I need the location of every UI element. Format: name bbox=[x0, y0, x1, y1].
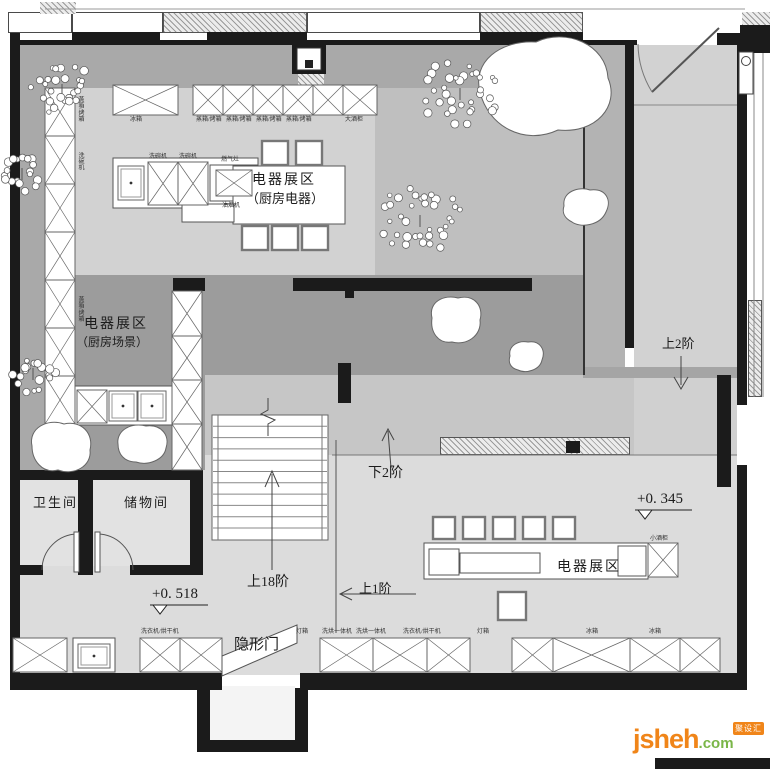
tree-foliage bbox=[473, 70, 479, 76]
tree-foliage bbox=[421, 194, 428, 201]
tree-foliage bbox=[30, 161, 37, 168]
bathroom-door-arc bbox=[42, 534, 78, 570]
wall-room-divider bbox=[78, 480, 93, 565]
tree-foliage bbox=[442, 85, 447, 90]
cabinet-label-left: 蒸箱/烤箱 bbox=[77, 296, 83, 322]
logo-tld: .com bbox=[699, 735, 734, 752]
tree-foliage bbox=[35, 376, 44, 385]
tree-foliage bbox=[47, 110, 52, 115]
tree-foliage bbox=[9, 371, 17, 379]
display-bar-leg bbox=[345, 291, 354, 298]
tree-foliage bbox=[430, 201, 438, 209]
wall-right-lower bbox=[737, 465, 747, 690]
porch-wall bbox=[197, 740, 308, 752]
display-square bbox=[523, 517, 545, 539]
tree-foliage bbox=[451, 120, 459, 128]
tree-foliage bbox=[402, 218, 410, 226]
porch-wall bbox=[295, 688, 308, 752]
display-square bbox=[262, 141, 288, 165]
cabinet-label-small-wine: 小酒柜 bbox=[650, 536, 668, 542]
tree-foliage bbox=[447, 97, 455, 105]
tree-foliage bbox=[52, 76, 60, 84]
logo-name: jsheh bbox=[633, 724, 699, 754]
up1-step-label: 上1阶 bbox=[359, 582, 392, 595]
storage-door-arc bbox=[97, 534, 133, 570]
tree-foliage bbox=[443, 224, 448, 229]
tree-foliage bbox=[412, 192, 419, 199]
tree-foliage bbox=[32, 183, 39, 190]
stone bbox=[509, 342, 543, 372]
display-square bbox=[553, 517, 575, 539]
tree-foliage bbox=[24, 155, 31, 162]
elevation-triangle bbox=[153, 605, 167, 614]
laundry-sink-drain bbox=[93, 655, 96, 658]
tree-foliage bbox=[387, 201, 394, 208]
display-square bbox=[272, 226, 298, 250]
elevation-518: +0. 518 bbox=[152, 587, 198, 602]
tree-foliage bbox=[57, 93, 65, 101]
kitchen-appliance-area-sublabel: （厨房电器） bbox=[246, 192, 324, 205]
jsheh-logo: jsheh.com 聚设汇 bbox=[633, 724, 768, 764]
tree-foliage bbox=[469, 100, 474, 105]
display-square bbox=[433, 517, 455, 539]
column-fixture-dot bbox=[305, 60, 313, 68]
tree-foliage bbox=[61, 75, 69, 83]
tree-foliage bbox=[1, 175, 9, 183]
wall-rooms-bottom bbox=[20, 565, 43, 575]
entry-door-leaf bbox=[652, 28, 719, 92]
wall-bottom-left bbox=[10, 673, 222, 690]
tree-foliage bbox=[388, 193, 393, 198]
tree-foliage bbox=[34, 360, 42, 368]
plan-geometry bbox=[0, 0, 770, 769]
tree-foliage bbox=[452, 204, 457, 209]
tree-foliage bbox=[409, 203, 414, 208]
wall-left bbox=[10, 33, 20, 690]
wall-rooms-bottom bbox=[130, 565, 203, 575]
tree-foliage bbox=[439, 231, 448, 240]
tree-foliage bbox=[403, 232, 412, 241]
tree-foliage bbox=[27, 171, 32, 176]
tree-foliage bbox=[36, 77, 43, 84]
down2-arrow bbox=[388, 431, 391, 468]
tree-foliage bbox=[388, 219, 392, 223]
tree-foliage bbox=[50, 104, 58, 112]
tree-foliage bbox=[24, 358, 29, 363]
cabinet-label-oven: 蒸箱/烤箱 bbox=[256, 117, 282, 123]
tree-foliage bbox=[424, 76, 432, 84]
tree-foliage bbox=[389, 241, 394, 246]
tree-foliage bbox=[72, 64, 77, 69]
wall-top-seg bbox=[207, 32, 307, 45]
tree-foliage bbox=[65, 97, 73, 105]
cabinet-label-left: 洗碗机 bbox=[77, 152, 83, 170]
logo-badge: 聚设汇 bbox=[733, 722, 764, 735]
tree-foliage bbox=[436, 99, 443, 106]
tree-foliage bbox=[492, 78, 498, 84]
tree-foliage bbox=[458, 207, 463, 212]
tree-foliage bbox=[53, 66, 59, 72]
tree-foliage bbox=[442, 90, 450, 98]
cabinet-label-washtower: 洗烘一体机 bbox=[356, 629, 386, 635]
cabinet-label-washer-dryer: 洗衣机/烘干机 bbox=[141, 629, 179, 635]
wall-inner-right bbox=[717, 375, 731, 487]
cabinet-label-washer-dryer: 洗衣机/烘干机 bbox=[403, 629, 441, 635]
display-area-label: 电器展区 bbox=[557, 561, 621, 575]
tree-foliage bbox=[450, 196, 456, 202]
tree-foliage bbox=[488, 107, 496, 115]
column bbox=[338, 363, 351, 403]
display-square bbox=[296, 141, 322, 165]
tree-foliage bbox=[458, 102, 464, 108]
cabinet-label-oven: 蒸箱/烤箱 bbox=[196, 117, 222, 123]
wall-bottom-right bbox=[300, 673, 747, 690]
tree-foliage bbox=[4, 167, 10, 173]
tree-foliage bbox=[23, 388, 30, 395]
cabinet-label-oven: 蒸箱/烤箱 bbox=[286, 117, 312, 123]
tree-foliage bbox=[444, 60, 451, 67]
display-bar bbox=[173, 278, 205, 291]
tree-foliage bbox=[423, 98, 429, 104]
floor-plan: 电器展区 （厨房电器） 电器展区 （厨房场景） 电器展区 卫生间 储物间 隐形门… bbox=[0, 0, 770, 769]
stone bbox=[479, 37, 611, 136]
platform-black-block bbox=[566, 441, 580, 453]
tree-foliage bbox=[454, 76, 459, 81]
tree-foliage bbox=[486, 95, 493, 102]
kitchen-scene-area-sublabel: （厨房场景） bbox=[76, 336, 148, 348]
elevation-345: +0. 345 bbox=[637, 492, 683, 507]
tree-foliage bbox=[28, 85, 33, 90]
wall-rooms-top bbox=[20, 470, 203, 480]
tree-foliage bbox=[427, 241, 433, 247]
entry-door-arc bbox=[638, 44, 652, 92]
tree-foliage bbox=[21, 364, 29, 372]
tree-foliage bbox=[46, 98, 53, 105]
display-square bbox=[463, 517, 485, 539]
stone bbox=[431, 297, 481, 343]
wall-entry-divider bbox=[625, 40, 634, 348]
wall-fixture-knob bbox=[742, 57, 751, 66]
cabinet-label-fridge: 冰箱 bbox=[586, 629, 598, 635]
tree-foliage bbox=[431, 88, 436, 93]
display-counter-end bbox=[618, 546, 646, 576]
stone bbox=[31, 422, 90, 472]
tree-foliage bbox=[426, 232, 433, 239]
cabinet-label-lightbox: 灯箱 bbox=[477, 629, 489, 635]
display-square bbox=[242, 226, 268, 250]
tree-foliage bbox=[47, 375, 53, 381]
tree-foliage bbox=[40, 95, 46, 101]
storage-label: 储物间 bbox=[124, 496, 169, 509]
up2-steps-label: 上2阶 bbox=[662, 337, 695, 350]
scene-sink-drain bbox=[122, 405, 125, 408]
display-square bbox=[493, 517, 515, 539]
cabinet-label-oven: 蒸箱/烤箱 bbox=[226, 117, 252, 123]
tree-foliage bbox=[427, 227, 431, 231]
island-sink-drain bbox=[130, 182, 133, 185]
elevation-triangle bbox=[638, 510, 652, 519]
bathroom-door-leaf bbox=[74, 532, 79, 572]
cabinet-label-fridge: 冰箱 bbox=[130, 117, 142, 123]
tree-foliage bbox=[45, 365, 54, 374]
tree-foliage bbox=[80, 66, 89, 75]
tree-foliage bbox=[21, 187, 29, 195]
storage-door-leaf bbox=[95, 532, 100, 572]
cabinet-label-cooktop: 燃气灶 bbox=[221, 157, 239, 163]
hidden-door-label: 隐形门 bbox=[234, 638, 279, 653]
cabinet-label-left: 蒸箱/烤箱 bbox=[77, 96, 83, 122]
tree-foliage bbox=[445, 74, 454, 83]
wall-storage-right bbox=[190, 470, 203, 575]
bathroom-label: 卫生间 bbox=[33, 496, 78, 509]
cabinet-label-fridge: 冰箱 bbox=[649, 629, 661, 635]
tree-foliage bbox=[449, 219, 454, 224]
tree-foliage bbox=[394, 232, 399, 237]
tree-foliage bbox=[79, 78, 84, 83]
cabinet-label-lightbox: 灯箱 bbox=[296, 629, 308, 635]
wall-top-seg bbox=[72, 32, 160, 45]
cabinet-label-wine: 大酒柜 bbox=[345, 117, 363, 123]
tree-foliage bbox=[417, 233, 423, 239]
tree-foliage bbox=[394, 194, 402, 202]
cabinet-label-hood: 油烟机 bbox=[222, 203, 240, 209]
tree-foliage bbox=[477, 87, 483, 93]
tree-foliage bbox=[10, 155, 18, 163]
down2-steps-label: 下2阶 bbox=[368, 467, 403, 481]
up18-steps-label: 上18阶 bbox=[247, 576, 289, 590]
display-counter-inset bbox=[460, 553, 540, 573]
display-square bbox=[302, 226, 328, 250]
tree-foliage bbox=[16, 180, 24, 188]
kitchen-appliance-area-label: 电器展区 bbox=[252, 174, 316, 188]
tree-foliage bbox=[467, 64, 471, 68]
tree-foliage bbox=[75, 88, 81, 94]
tree-foliage bbox=[467, 109, 473, 115]
display-bar-long bbox=[293, 278, 532, 291]
tree-foliage bbox=[45, 76, 51, 82]
scene-sink-drain bbox=[151, 405, 154, 408]
cabinet-label-dishwasher: 洗碗机 bbox=[149, 154, 167, 160]
tree-foliage bbox=[32, 389, 37, 394]
tree-foliage bbox=[407, 186, 413, 192]
stone bbox=[563, 189, 608, 225]
display-counter-box bbox=[429, 549, 459, 575]
display-square bbox=[498, 592, 526, 620]
tree-foliage bbox=[15, 380, 22, 387]
stone bbox=[118, 425, 167, 463]
tree-foliage bbox=[17, 373, 24, 380]
tree-foliage bbox=[48, 88, 54, 94]
wall-rooms-bottom bbox=[78, 565, 93, 575]
tree-foliage bbox=[419, 239, 426, 246]
tree-foliage bbox=[428, 192, 434, 198]
staircase bbox=[212, 415, 328, 540]
tree-foliage bbox=[437, 244, 444, 251]
tree-foliage bbox=[398, 214, 403, 219]
tree-foliage bbox=[380, 230, 387, 237]
kitchen-scene-area-label: 电器展区 bbox=[84, 318, 148, 332]
tree-foliage bbox=[424, 109, 432, 117]
cabinet-label-dishwasher: 洗碗机 bbox=[179, 154, 197, 160]
tree-foliage bbox=[444, 111, 450, 117]
tree-foliage bbox=[36, 387, 41, 392]
tree-foliage bbox=[402, 241, 409, 248]
cabinet-label-washtower: 洗烘一体机 bbox=[322, 629, 352, 635]
tree-foliage bbox=[463, 120, 471, 128]
